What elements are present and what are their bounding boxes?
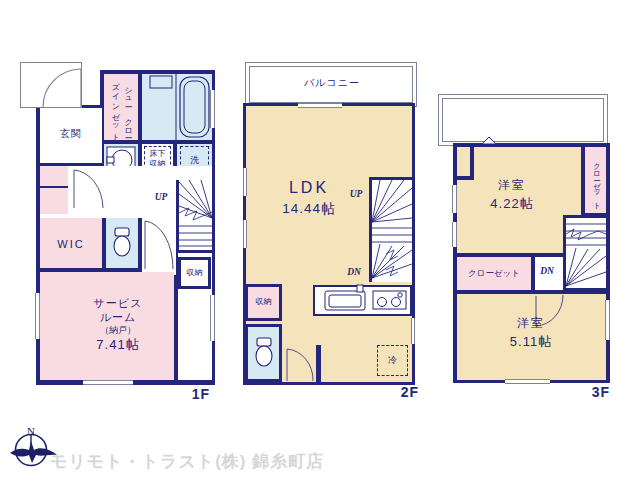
room-closet-right: クローゼット xyxy=(585,147,606,213)
floor-2f-plan: バルコニー LDK 14.44帖 UP DN xyxy=(243,60,418,400)
fridge-space: 冷 xyxy=(377,345,408,376)
stairs-3f xyxy=(563,215,606,288)
entrance-door-arc xyxy=(21,63,83,109)
room-a-label: 洋室 xyxy=(462,178,562,193)
label-up-2f: UP xyxy=(343,189,369,201)
closet-left-label: クローゼット xyxy=(457,268,531,279)
stairs-2f xyxy=(369,177,412,282)
window-mark xyxy=(452,185,457,213)
label-dn-3f: DN xyxy=(532,266,562,278)
room-b-area: 5.11帖 xyxy=(481,334,581,350)
label-dn-2f: DN xyxy=(341,267,367,279)
balcony-access-mark xyxy=(481,136,497,145)
compass-n-label: N xyxy=(27,425,35,437)
kitchen-counter xyxy=(313,285,412,316)
label-floor-2f: 2F xyxy=(395,384,425,402)
wall-stub xyxy=(470,147,474,179)
ldk-door-arc xyxy=(285,348,315,382)
label-floor-1f: 1F xyxy=(186,386,216,404)
service-label-2: ルーム xyxy=(56,311,180,325)
wall-stub xyxy=(316,345,321,382)
footer: N モリモト・トラスト(株) 錦糸町店 xyxy=(0,415,640,480)
storage-2f-label: 収納 xyxy=(248,297,279,307)
toilet-icon xyxy=(253,337,275,369)
room-closet-left: クローゼット xyxy=(457,257,531,290)
service-door-arc xyxy=(142,218,176,272)
room-storage-1f: 収納 xyxy=(178,257,211,289)
fridge-label: 冷 xyxy=(378,355,407,366)
balcony-2f: バルコニー xyxy=(245,62,417,107)
window-mark xyxy=(243,168,247,196)
window-mark xyxy=(411,318,415,344)
window-mark xyxy=(505,379,550,384)
window-mark xyxy=(452,222,457,247)
window-mark xyxy=(243,220,247,248)
shoes-closet-label-2: クローゼット xyxy=(108,108,134,139)
balcony-label: バルコニー xyxy=(246,77,418,90)
closet-right-label: クローゼット xyxy=(592,151,601,211)
room-shoes-in-closet: シューズインクローゼット xyxy=(104,74,138,140)
room-toilet-1f xyxy=(106,218,138,268)
floor-3f-plan: 洋室 4.22帖 クローゼット DN クローゼット xyxy=(436,92,614,402)
hall-closet-upper xyxy=(40,166,68,188)
balcony-3f xyxy=(438,94,608,146)
ldk-area-label: 14.44帖 xyxy=(259,201,359,218)
room-a-area: 4.22帖 xyxy=(462,196,562,212)
hall-door-arc xyxy=(72,168,106,210)
service-label-4: 7.41帖 xyxy=(56,337,180,353)
label-up-1f: UP xyxy=(148,192,174,204)
porch xyxy=(20,62,82,108)
toilet-icon xyxy=(111,227,133,259)
room-toilet-2f xyxy=(245,324,282,382)
agency-name: モリモト・トラスト(株) 錦糸町店 xyxy=(50,451,450,472)
room-bath xyxy=(142,74,212,140)
shoes-closet-label-1: シューズイン xyxy=(108,77,134,108)
underfloor-label-1: 床下 xyxy=(142,149,173,159)
bathtub-icon xyxy=(142,74,212,140)
floor-1f-plan: 玄関 シューズインクローゼット 床下 xyxy=(20,62,220,407)
window-mark xyxy=(210,90,215,128)
hall2-1f xyxy=(142,218,176,275)
floor-plan-page: 玄関 シューズインクローゼット 床下 xyxy=(0,0,640,480)
window-mark xyxy=(605,300,610,340)
room-b-label: 洋室 xyxy=(481,316,581,331)
window-mark xyxy=(83,380,133,385)
storage-1f-label: 収納 xyxy=(181,268,208,278)
window-mark xyxy=(210,295,215,341)
hall-closet-lower xyxy=(40,188,68,214)
balcony-door-mark xyxy=(298,103,342,108)
genkan-label: 玄関 xyxy=(40,128,102,141)
service-label-1: サービス xyxy=(56,297,180,311)
window-mark xyxy=(35,293,40,339)
laundry-label: 洗 xyxy=(177,155,212,166)
room-storage-2f: 収納 xyxy=(245,284,282,321)
stairs-1f xyxy=(176,180,212,253)
service-label-3: （納戸） xyxy=(56,325,180,336)
kitchen-sink-stove-icon xyxy=(315,287,409,313)
label-floor-3f: 3F xyxy=(586,384,616,402)
wic-label: WIC xyxy=(40,238,102,252)
